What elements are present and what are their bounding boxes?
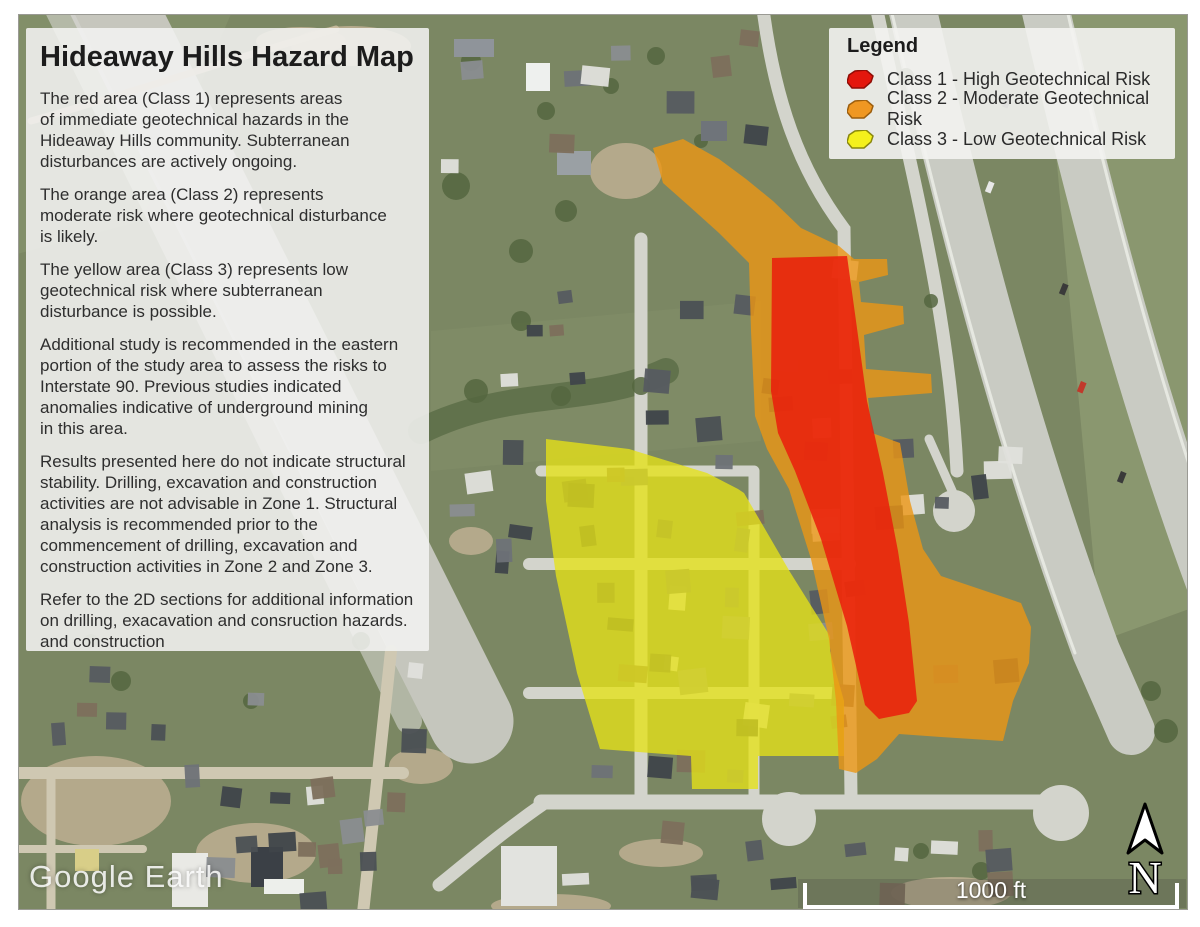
legend-label: Class 3 - Low Geotechnical Risk <box>887 129 1146 150</box>
class1-red-swatch-icon <box>847 70 875 89</box>
paragraph-additional-study: Additional study is recommended in the e… <box>40 334 415 439</box>
class3-yellow-swatch-icon <box>847 130 875 149</box>
google-earth-watermark: Google Earth <box>29 859 224 895</box>
paragraph-results: Results presented here do not indicate s… <box>40 451 415 577</box>
north-arrow-icon: N <box>1117 801 1173 901</box>
north-label: N <box>1128 852 1161 901</box>
hazard-map-page: Hideaway Hills Hazard Map The red area (… <box>0 0 1200 927</box>
scalebar-line <box>803 905 1179 909</box>
legend-panel: Legend Class 1 - High Geotechnical Risk … <box>829 28 1175 159</box>
paragraph-class3: The yellow area (Class 3) represents low… <box>40 259 415 322</box>
paragraph-class2: The orange area (Class 2) represents mod… <box>40 184 415 247</box>
legend-label: Class 1 - High Geotechnical Risk <box>887 69 1150 90</box>
paragraph-refer: Refer to the 2D sections for additional … <box>40 589 415 652</box>
legend-item-class3: Class 3 - Low Geotechnical Risk <box>847 124 1165 154</box>
legend-item-class2: Class 2 - Moderate Geotechnical Risk <box>847 94 1165 124</box>
class2-orange-swatch-icon <box>847 100 875 119</box>
description-panel: Hideaway Hills Hazard Map The red area (… <box>26 28 429 651</box>
page-title: Hideaway Hills Hazard Map <box>40 40 415 74</box>
legend-label: Class 2 - Moderate Geotechnical Risk <box>887 88 1165 130</box>
paragraph-class1: The red area (Class 1) represents areas … <box>40 88 415 172</box>
legend-title: Legend <box>847 35 1165 58</box>
satellite-map: Hideaway Hills Hazard Map The red area (… <box>18 14 1188 910</box>
